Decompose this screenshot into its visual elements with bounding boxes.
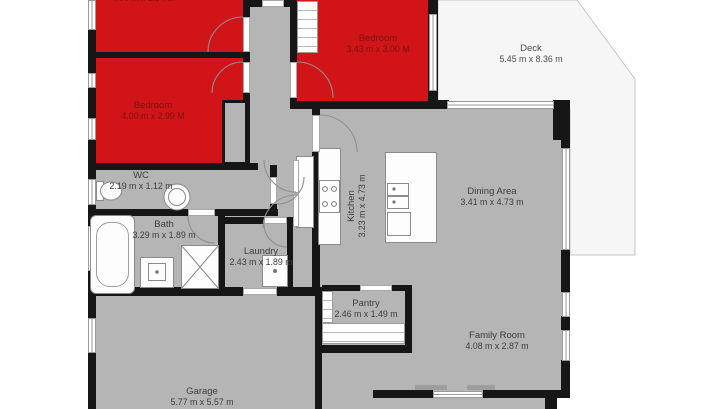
window [88,73,96,88]
room-label-kitchen: Kitchen 3.23 m x 4.73 m [346,174,368,237]
wall [243,0,250,17]
room-label-bedroom-left: Bedroom 4.00 m x 2.99 M [121,100,184,122]
room-label-family: Family Room 4.08 m x 2.87 m [465,330,528,352]
room-name: Laundry [229,246,292,257]
wall [270,165,277,177]
room-name: Family Room [465,330,528,341]
wall [315,345,412,353]
slider-panel [415,385,447,390]
closet-door [293,194,299,227]
room-label-pantry: Pantry 2.46 m x 1.49 m [334,298,397,320]
room-dims: 3.29 m x 1.89 m [132,230,195,241]
toilet-cistern [96,181,104,201]
room-dims: 3.43 m x 3.00 M [346,44,409,55]
room-label-laundry: Laundry 2.43 m x 1.89 m [229,246,292,268]
window [562,330,570,361]
island-appliance [387,183,409,196]
shower [181,245,219,289]
room-label-dining: Dining Area 3.41 m x 4.73 m [460,186,523,208]
closet-door [293,160,299,193]
floor-porch [433,397,545,409]
wall-exterior-right [561,250,570,292]
window [88,318,96,353]
door [270,177,277,204]
window [562,292,570,317]
island-sink [387,212,411,236]
wall [96,52,250,58]
window-slider-dining [447,101,554,109]
room-dims: 4.08 m x 2.87 m [465,341,528,352]
wall-exterior-right [561,360,570,397]
wall [373,390,433,398]
wall [215,209,278,216]
room-name: Kitchen [346,174,357,237]
room-dims: 2.19 m x 1.12 m [109,181,172,192]
room-label-top-left: 4.00 m x 2.94 M [111,0,174,4]
room-name: Bath [132,219,195,230]
door-slider-family [433,391,483,398]
wall [218,216,225,295]
room-label-wc: WC 2.19 m x 1.12 m [109,170,172,192]
wall [250,0,262,7]
wall-exterior-right [561,316,570,330]
wall [312,101,320,115]
room-label-bedroom-top: Bedroom 3.43 m x 3.00 M [346,33,409,55]
room-label-deck: Deck 5.45 m x 8.36 m [499,43,562,65]
room-label-garage: Garage 5.77 m x 5.57 m [170,386,233,408]
room-name: Bedroom [346,33,409,44]
door [243,17,250,52]
room-dims: 3.23 m x 4.73 m [357,174,368,237]
window [429,14,437,91]
wall-exterior-right [561,103,570,148]
opening-pantry [360,285,392,291]
room-name: Deck [499,43,562,54]
room-dims: 4.00 m x 2.99 M [121,111,184,122]
bathtub-inner [96,222,129,287]
door-laundry-garage [243,288,277,295]
slider-panel [467,385,495,390]
room-name: Bedroom [121,100,184,111]
room-label-bath: Bath 3.29 m x 1.89 m [132,219,195,241]
door [290,62,297,98]
room-dims: 5.77 m x 5.57 m [170,397,233,408]
wall [405,287,412,353]
room-name: Dining Area [460,186,523,197]
room-dims: 5.45 m x 8.36 m [499,54,562,65]
room-dims: 2.46 m x 1.49 m [334,309,397,320]
room-dims: 4.00 m x 2.94 M [111,0,174,4]
wall [483,390,570,398]
wall [290,0,297,62]
window [562,148,570,250]
wall [270,204,277,216]
wardrobe-bedroom-top [297,1,318,53]
floor-living [433,103,568,397]
bath-sink [148,263,166,281]
door [243,62,250,93]
window [88,179,96,205]
room-dims: 2.43 m x 1.89 m [229,257,292,268]
wall [290,98,297,109]
wall [545,398,557,409]
window [88,118,96,140]
door [188,209,215,216]
room-name: Garage [170,386,233,397]
window [88,0,96,30]
door [312,115,320,152]
room-name: WC [109,170,172,181]
door [264,217,287,224]
opening-hall [262,0,284,7]
island-appliance [387,196,409,209]
floor-plan: 4.00 m x 2.94 M Bedroom 4.00 m x 2.99 M … [0,0,716,409]
wall-garage-right [315,287,322,409]
stove [319,180,340,213]
room-dims: 3.41 m x 4.73 m [460,197,523,208]
wardrobe-bedroom-left [222,100,248,165]
pantry-shelf [322,291,333,323]
wall [218,217,268,224]
room-top-left-highlight [96,0,243,53]
room-name: Pantry [334,298,397,309]
pantry-shelf [322,323,405,344]
